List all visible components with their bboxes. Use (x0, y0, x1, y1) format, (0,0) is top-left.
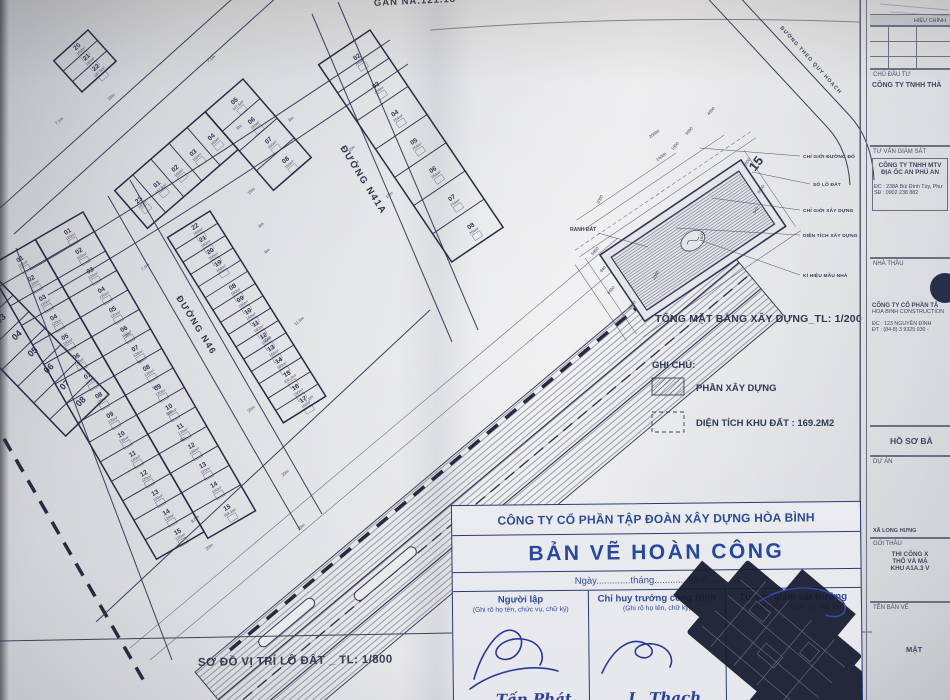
section-du-an: DỰ ÁN XÃ LONG HƯNG (870, 456, 950, 538)
lot-label: 05 (26, 345, 40, 359)
callout-label: KÍ HIỆU MẪU NHÀ (803, 271, 848, 279)
contractor-line: HOA BINH CONSTRUCTION (872, 309, 950, 315)
detail-dimension-label: 2000 (595, 193, 604, 204)
supervisor-phone: SĐ : 0902 238 882 (874, 190, 946, 196)
lot-label: 02120m² (25, 273, 44, 294)
section-label: TÊN BẢN VẼ (870, 603, 950, 611)
dimension-label: 8m (235, 123, 243, 131)
lot-label: 08120m² (140, 362, 159, 383)
lot-label: 05264m² (408, 136, 427, 157)
dimension-label: 5m (137, 357, 145, 365)
callout-label: CHỈ GIỚI ĐƯỜNG ĐỎ (803, 152, 855, 160)
role-label: Chỉ huy trưởng công trình (589, 592, 724, 604)
dimension-label: 11,5m (293, 315, 305, 326)
site-dimension-labels: 7,1m7,1m7,1m7,1m15m15m8m8m8m12m12m9m11,5… (54, 54, 394, 552)
table-line (916, 27, 917, 68)
signer-name: L. Thạch (628, 689, 701, 700)
lot-label: 12120m² (185, 440, 204, 461)
lot-label: 08160m² (280, 154, 300, 175)
dossier-title: HỒ SƠ BẢ (870, 427, 950, 446)
package-line: KHU A1A.3 V (870, 565, 950, 572)
detail-dimension-label: 8460 (606, 284, 616, 295)
lot-label: 04120m² (95, 284, 114, 305)
lot-label: 08264m² (465, 220, 484, 241)
table-line (888, 27, 889, 68)
section-goi-thau: GÓI THẦU THI CÔNG X THÔ VÀ MẶ KHU A1A.3 … (870, 538, 950, 602)
lot-label: 12120m² (138, 468, 157, 489)
section-label: GÓI THẦU (870, 539, 950, 547)
lot-label: 14120m² (160, 507, 179, 528)
lot-label: 01120m² (61, 226, 80, 247)
detail-dimension-label: 14000 (655, 151, 668, 162)
lot-label: 09120m² (104, 409, 123, 430)
legend-item-1: PHẦN XÂY DỰNG (696, 382, 777, 394)
lot-label: 05120m² (59, 331, 78, 352)
signature-col-nguoi-lap: Người lập (Ghi rõ họ tên, chức vụ, chữ k… (453, 591, 590, 700)
detail-dimension-label: 4000 (706, 105, 716, 116)
as-built-title-block: CÔNG TY CỔ PHẦN TẬP ĐOÀN XÂY DỰNG HÒA BÌ… (451, 501, 863, 700)
role-note: (Ghi rõ họ tên, chữ ký) (589, 604, 724, 612)
lot-08 (433, 199, 503, 262)
block-north: 05147.5m²06160m²07160m²08160m²04160m²031… (115, 79, 312, 269)
road-label-n41a: ĐƯỜNG N41A (337, 143, 389, 216)
photo-of-drawing: 20160m²21160m²22187.5m²01020304050607080… (0, 0, 950, 700)
title-strip: HIỆU CHỈNH CHỦ ĐẦU TƯ CÔNG TY TNHH THÀ T… (860, 0, 950, 700)
signature-columns: Người lập (Ghi rõ họ tên, chức vụ, chữ k… (453, 588, 862, 700)
lot-label: 04160m² (205, 131, 225, 152)
legend-hatch-swatch (652, 378, 684, 395)
lot-label: 13120m² (196, 460, 215, 481)
dimension-label: 20m (246, 404, 256, 413)
lot-label: 11120m² (126, 448, 145, 469)
callout-label: CHỈ GIỚI XÂY DỰNG (803, 206, 854, 214)
drawing-name: MẶT (870, 611, 950, 654)
dimension-label: 7,1m (206, 54, 217, 64)
package-line: THÔ VÀ MẶ (870, 558, 950, 565)
lot-number: 05 (26, 345, 40, 359)
detail-dimension-label: 1000 (670, 140, 680, 151)
lot-number: 04 (10, 328, 24, 342)
dimension-label: 8m (287, 115, 295, 123)
signature-col-chi-huy: Chỉ huy trưởng công trình (Ghi rõ họ tên… (589, 589, 726, 700)
dimension-label: 7,1m (140, 262, 151, 272)
callout-leader-line (700, 148, 800, 156)
section-tu-van-giam-sat: TƯ VẤN GIÁM SÁT CÔNG TY TNHH MTV ĐỊA ỐC … (870, 146, 950, 258)
dimension-label: 20m (204, 542, 214, 551)
lot-label: 02160m² (169, 162, 189, 183)
lot-label: 05120m² (106, 304, 125, 325)
lot-label: 06264m² (427, 164, 446, 185)
role-note: (Ghi rõ họ tên, chức vụ, chữ ký) (453, 606, 588, 614)
detail-caption: TỔNG MẶT BẰNG XÂY DỰNG_TL: 1/200 (655, 312, 862, 325)
lot-number: 03 (0, 312, 8, 326)
lot-label: 02120m² (73, 245, 92, 266)
legend-title: GHI CHÚ: (652, 359, 695, 371)
block-top-left: 20160m²21160m²22187.5m² (54, 30, 120, 96)
drawing-title: BẢN VẼ HOÀN CÔNG (452, 532, 860, 573)
lot-label: 07264m² (446, 192, 465, 213)
contractor-company-name: CÔNG TY CỔ PHẦN TẬP ĐOÀN XÂY DỰNG HÒA BÌ… (452, 502, 860, 536)
dimension-label: 20m (280, 468, 290, 477)
revision-header: HIỆU CHỈNH (870, 14, 950, 26)
lot-label: 05147.5m² (227, 94, 250, 117)
package-line: THI CÔNG X (870, 551, 950, 558)
revision-row (870, 27, 950, 42)
section-label: DỰ ÁN (870, 457, 950, 465)
legend-item-2: DIỆN TÍCH KHU ĐẤT : 169.2M2 (696, 417, 834, 429)
lot-label: 13120m² (149, 487, 168, 508)
section-ho-so: HỒ SƠ BẢ (870, 426, 950, 456)
contractor-phone: ĐT : (84-8) 3 9325 030 - (872, 327, 950, 333)
contractor-logo-icon (930, 273, 950, 303)
lot-label: 03 (0, 312, 8, 326)
lot-label: 01147.5m² (150, 177, 173, 200)
revision-row (870, 42, 950, 57)
top-annotation: GẦN NA.121.18 (374, 0, 457, 9)
dimension-label: 9m (263, 247, 271, 255)
dimension-label: 12m (384, 190, 394, 199)
lot-label: 04264m² (389, 107, 408, 128)
section-label: NHÀ THẦU (870, 259, 950, 267)
section-chu-dau-tu: CHỦ ĐẦU TƯ CÔNG TY TNHH THÀ (870, 69, 950, 146)
revision-table (870, 26, 950, 69)
detail-dimension-label: 940 (599, 264, 608, 273)
role-note: (Ghi rõ họ tên, chức vụ, chữ ký) (726, 603, 861, 611)
detail-dimension-label: 20000 (648, 128, 661, 139)
lot-label: 07120m² (81, 370, 100, 391)
detail-dimension-label: 3000 (684, 125, 694, 136)
signature-col-giam-sat: Tư vấn giám sát trưởng (Ghi rõ họ tên, c… (725, 588, 861, 700)
supervisor-line: CÔNG TY TNHH MTV (874, 162, 946, 169)
dimension-label: 8m (257, 221, 265, 229)
section-label: TƯ VẤN GIÁM SÁT (870, 147, 950, 155)
dimension-label: 15m (246, 186, 256, 195)
lot-label: 01120m² (14, 253, 33, 274)
callout-leader-line (752, 172, 810, 184)
lot-label: 06120m² (70, 351, 89, 372)
dimension-label: 7,1m (54, 116, 65, 126)
callout-label: SỐ LÔ ĐẤT (813, 180, 841, 188)
owner-company: CÔNG TY TNHH THÀ (870, 78, 950, 89)
lot-label: 04120m² (48, 312, 67, 333)
role-label: Tư vấn giám sát trưởng (725, 591, 860, 603)
supervisor-line: ĐỊA ỐC AN PHÚ AN (874, 169, 946, 176)
project-location: XÃ LONG HƯNG (873, 528, 916, 534)
lot-label: 03160m² (187, 147, 207, 168)
section-ten-ban-ve: TÊN BẢN VẼ MẶT (870, 602, 950, 700)
lot-label: 10120m² (115, 429, 134, 450)
role-label: Người lập (453, 594, 588, 606)
lot-label: 07160m² (262, 134, 282, 155)
dimension-label: 15m (106, 92, 116, 101)
signer-name: Tấn Phát (496, 690, 572, 700)
revision-row (870, 57, 950, 69)
ranh-dat-label: RANH ĐẤT (570, 226, 596, 233)
lot-label: 04 (10, 328, 24, 342)
lot-label: 14120m² (208, 479, 227, 500)
section-nha-thau: NHÀ THẦU CÔNG TY CỔ PHẦN TẬ HOA BINH CON… (870, 258, 950, 426)
section-label: CHỦ ĐẦU TƯ (870, 70, 950, 78)
callout-label: DIỆN TÍCH XÂY DỰNG (803, 231, 858, 239)
